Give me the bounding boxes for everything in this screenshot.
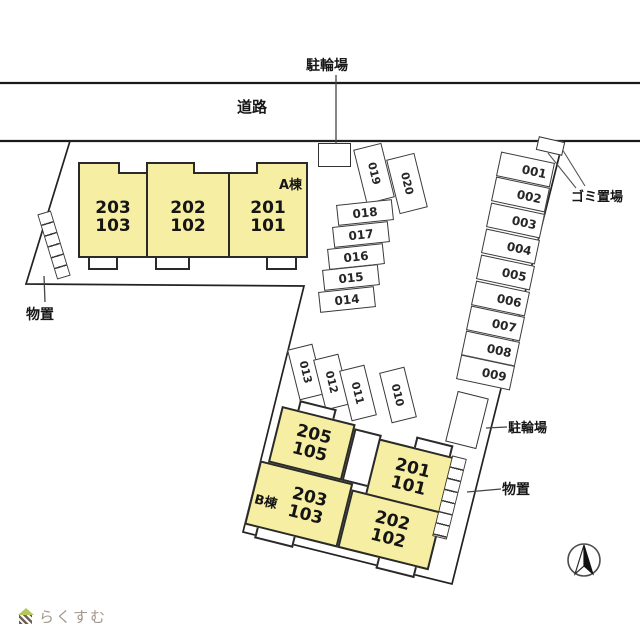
parking-number: 010 — [389, 382, 407, 407]
parking-number: 017 — [348, 226, 374, 243]
parking-number: 007 — [491, 316, 518, 335]
parking-number: 009 — [481, 365, 508, 384]
house-roof — [18, 608, 34, 615]
unit-upper-number: 203 — [95, 199, 131, 217]
building-a-roof-notch-3 — [230, 162, 258, 174]
parking-number: 003 — [511, 213, 538, 232]
rakusumu-logo[interactable]: らくすむ — [18, 606, 107, 627]
unit-upper-number: 201 — [250, 199, 286, 217]
unit-lower-number: 103 — [95, 217, 131, 235]
unit-numbers: 203 103 — [286, 484, 329, 528]
unit-numbers: 202 102 — [369, 508, 412, 552]
parking-number: 001 — [521, 162, 548, 181]
bicycle-lower-label: 駐輪場 — [508, 417, 547, 436]
unit-upper-number: 202 — [170, 199, 206, 217]
unit-numbers: 203 103 — [95, 199, 131, 236]
road-label: 道路 — [237, 96, 267, 117]
parking-number: 018 — [352, 204, 378, 221]
garbage-label: ゴミ置場 — [571, 186, 623, 205]
bicycle-lower-pointer-line — [486, 427, 507, 428]
storage-left-pointer-line — [44, 276, 45, 302]
storage-right-pointer-line — [467, 489, 501, 492]
parking-number: 014 — [334, 291, 360, 308]
compass-north-arrow — [568, 544, 600, 576]
site-plan: 道路 駐輪場 ゴミ置場 物置 203 103 202 102 201 101 A… — [0, 0, 640, 640]
building-a-entrance-step-3 — [266, 258, 297, 270]
unit-lower-number: 101 — [250, 217, 286, 235]
parking-number: 016 — [343, 248, 369, 265]
storage-left-label: 物置 — [26, 304, 54, 324]
house-body — [19, 615, 32, 624]
site-plan-linework — [0, 0, 640, 640]
parking-number: 019 — [365, 161, 383, 186]
parking-number: 020 — [398, 171, 416, 196]
building-a-roof-notch-1 — [118, 162, 148, 174]
building-a-unit-203-103: 203 103 — [78, 162, 148, 258]
parking-number: 011 — [349, 380, 367, 405]
unit-numbers: 202 102 — [170, 199, 206, 236]
unit-lower-number: 102 — [170, 217, 206, 235]
logo-text: らくすむ — [39, 606, 107, 627]
building-a-entrance-step-2 — [155, 258, 190, 270]
parking-number: 002 — [516, 187, 543, 206]
building-a-unit-201-101: 201 101 A棟 — [228, 162, 308, 258]
parking-number: 008 — [486, 341, 513, 360]
parking-number: 013 — [297, 359, 315, 384]
building-a-entrance-step-1 — [88, 258, 118, 270]
parking-number: 015 — [338, 269, 364, 286]
bicycle-top-label: 駐輪場 — [306, 55, 348, 75]
unit-numbers: 201 101 — [250, 199, 286, 236]
house-icon — [18, 608, 34, 625]
storage-right-label: 物置 — [502, 479, 530, 499]
unit-numbers: 201 101 — [389, 455, 432, 499]
parking-number: 004 — [506, 239, 533, 258]
parking-number: 006 — [496, 291, 523, 310]
bicycle-top-area — [318, 143, 351, 167]
parking-number: 005 — [501, 265, 528, 284]
unit-numbers: 205 105 — [290, 421, 333, 465]
building-a-unit-202-102: 202 102 — [146, 162, 230, 258]
building-a-name-tag: A棟 — [279, 174, 302, 193]
building-a-roof-notch-2 — [193, 162, 230, 174]
parking-number: 012 — [323, 369, 341, 394]
